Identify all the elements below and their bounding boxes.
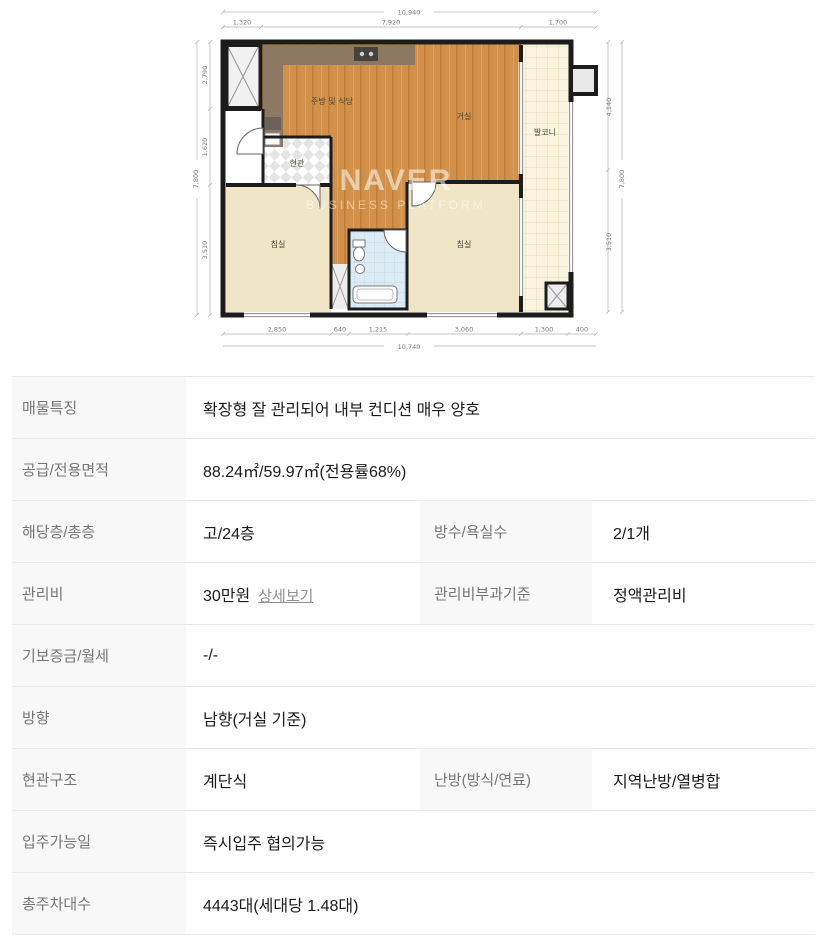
property-details-table: 매물특징 확장형 잘 관리되어 내부 컨디션 매우 양호 공급/전용면적 88.… [12,376,815,935]
dim-bottom-5: 1,300 [534,326,553,334]
watermark-subtitle: BUSINESS PLATFORM [306,198,485,212]
stove-icon [354,47,378,61]
row-value: 즉시입주 협의가능 [203,830,325,854]
dim-right-total: 7,800 [618,170,626,189]
balcony-floor [521,44,571,312]
washbasin-icon [355,265,364,274]
floor-plan-image: 주방 및 식당 거실 발코니 현관 침실 침실 NAVER BUSINESS P… [184,2,644,354]
watermark-brand: NAVER [339,164,452,197]
table-row: 입주가능일 즉시입주 협의가능 [12,811,815,873]
dim-top-1: 1,320 [232,19,251,27]
table-row: 현관구조 계단식 난방(방식/연료) 지역난방/열병합 [12,749,815,811]
sink-icon [265,117,281,130]
table-row: 관리비 30만원상세보기 관리비부과기준 정액관리비 [12,563,815,625]
row-value-2: 정액관리비 [613,582,687,606]
row-value: 확장형 잘 관리되어 내부 컨디션 매우 양호 [203,396,480,420]
entrance-label: 현관 [289,158,304,168]
dim-bottom-1: 2,850 [267,326,286,334]
row-value-2: 지역난방/열병합 [613,768,721,792]
elevator-shaft-icon [226,45,260,108]
row-label: 공급/전용면적 [12,439,186,500]
bedroom-right-label: 침실 [456,239,471,249]
dim-bottom-4: 3,060 [454,326,473,334]
dim-right-2: 3,510 [605,233,613,252]
row-value: 남향(거실 기준) [203,706,306,730]
row-value: 계단식 [203,768,420,792]
row-label: 방향 [12,687,186,748]
dim-bottom-2: 640 [333,326,345,334]
row-label: 총주차대수 [12,873,186,934]
dim-left-3: 3,510 [201,241,209,260]
table-row: 총주차대수 4443대(세대당 1.48대) [12,873,815,935]
row-value-2: 2/1개 [613,520,650,544]
dim-left-1: 2,790 [201,66,209,85]
maintenance-fee-value: 30만원 [203,588,250,605]
kitchen-label: 주방 및 식당 [311,96,354,106]
toilet-icon [353,240,365,247]
table-row: 매물특징 확장형 잘 관리되어 내부 컨디션 매우 양호 [12,377,815,439]
balcony-label: 발코니 [533,127,555,137]
dim-bottom-total: 10,740 [397,343,420,351]
table-row: 공급/전용면적 88.24㎡/59.97㎡(전용률68%) [12,439,815,501]
row-label-2: 관리비부과기준 [420,563,592,624]
dim-left-2: 1,620 [201,138,209,157]
row-label: 기보증금/월세 [12,625,186,686]
row-value: 88.24㎡/59.97㎡(전용률68%) [203,458,406,482]
row-label: 해당층/총층 [12,501,186,562]
table-row: 해당층/총층 고/24층 방수/욕실수 2/1개 [12,501,815,563]
row-label-2: 방수/욕실수 [420,501,592,562]
bathtub-icon [353,286,397,303]
dim-bottom-3: 1,215 [368,326,387,334]
row-value: 고/24층 [203,520,420,544]
exterior-unit-box [571,67,596,94]
maintenance-fee-detail-link[interactable]: 상세보기 [258,588,313,605]
row-label-2: 난방(방식/연료) [420,749,592,810]
row-value: -/- [203,647,218,665]
duct-shaft-icon [331,264,349,309]
row-label: 현관구조 [12,749,186,810]
living-room-label: 거실 [456,111,471,121]
dim-top-3: 1,700 [548,19,567,27]
dim-right-1: 4,140 [605,98,613,117]
table-row: 기보증금/월세 -/- [12,625,815,687]
row-label: 관리비 [12,563,186,624]
dim-top-total: 10,940 [397,9,420,17]
dim-left-total: 7,800 [192,170,200,189]
floor-plan: 주방 및 식당 거실 발코니 현관 침실 침실 NAVER BUSINESS P… [184,2,644,354]
bedroom-left-label: 침실 [270,239,285,249]
row-label: 입주가능일 [12,811,186,872]
row-label: 매물특징 [12,377,186,438]
table-row: 방향 남향(거실 기준) [12,687,815,749]
balcony-shaft-icon [546,283,568,309]
dim-top-2: 7,920 [381,19,400,27]
dim-bottom-6: 400 [575,326,587,334]
row-value: 30만원상세보기 [203,582,420,606]
